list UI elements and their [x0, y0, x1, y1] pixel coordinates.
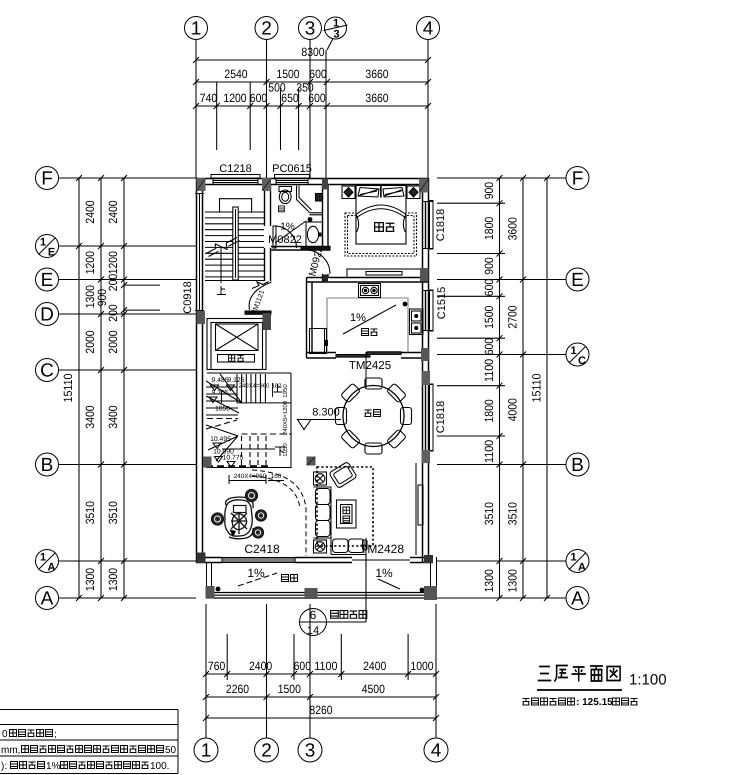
svg-text:C: C [578, 355, 586, 367]
svg-text:9.305: 9.305 [211, 390, 228, 397]
svg-text:1300: 1300 [506, 569, 520, 592]
svg-text:1500: 1500 [276, 67, 299, 81]
svg-text:2000: 2000 [106, 330, 120, 353]
svg-text:mm,: mm, [1, 745, 20, 756]
svg-text:50: 50 [165, 745, 177, 756]
svg-text:3400: 3400 [83, 405, 97, 428]
svg-text:1: 1 [570, 345, 576, 357]
svg-text:C1218: C1218 [219, 163, 251, 175]
svg-text:900: 900 [482, 257, 496, 275]
svg-text:1200: 1200 [223, 91, 246, 105]
svg-text:1500: 1500 [278, 682, 301, 696]
svg-text:1100: 1100 [482, 440, 496, 463]
svg-text:8300: 8300 [301, 45, 324, 59]
svg-text:1: 1 [201, 741, 212, 762]
svg-text:3510: 3510 [482, 502, 496, 525]
svg-text:2400: 2400 [249, 659, 272, 673]
svg-text:15110: 15110 [530, 373, 544, 402]
svg-text:: 125.15: : 125.15 [576, 697, 613, 708]
svg-text:E: E [48, 247, 55, 259]
svg-text:1950: 1950 [282, 384, 289, 398]
svg-text:;: ; [54, 729, 57, 740]
svg-text:1500: 1500 [482, 305, 496, 328]
svg-text:600: 600 [309, 67, 327, 81]
svg-text:10.495: 10.495 [210, 436, 231, 443]
svg-text:3510: 3510 [106, 501, 120, 524]
svg-text:F: F [572, 169, 584, 190]
svg-text:3660: 3660 [365, 67, 388, 81]
svg-text:1%: 1% [46, 761, 61, 772]
svg-text:1:100: 1:100 [629, 672, 667, 689]
svg-text:1: 1 [40, 552, 46, 564]
svg-text:200: 200 [106, 274, 120, 292]
svg-text:1100: 1100 [482, 359, 496, 382]
svg-text:C2418: C2418 [244, 542, 280, 556]
svg-text:1050: 1050 [282, 443, 289, 457]
svg-text:2400: 2400 [363, 659, 386, 673]
svg-text:D: D [40, 305, 54, 326]
svg-text:C1818: C1818 [435, 209, 447, 241]
svg-text:B: B [571, 455, 584, 476]
svg-text:C: C [40, 361, 54, 382]
svg-text:240X4=960: 240X4=960 [239, 383, 271, 390]
svg-text:240X5=1200: 240X5=1200 [282, 400, 289, 435]
svg-text:10.775: 10.775 [223, 455, 244, 462]
svg-text:600: 600 [482, 338, 496, 356]
svg-text:3510: 3510 [83, 501, 97, 524]
svg-text:4500: 4500 [362, 682, 385, 696]
svg-text:1050: 1050 [215, 406, 230, 413]
svg-text:3660: 3660 [365, 91, 388, 105]
svg-text:):: ): [1, 761, 7, 772]
svg-text:600: 600 [308, 91, 326, 105]
svg-text:A: A [48, 562, 56, 574]
svg-text:1300: 1300 [106, 568, 120, 591]
svg-text:B: B [41, 455, 54, 476]
svg-text:15110: 15110 [61, 373, 75, 402]
svg-text:TM2428: TM2428 [360, 542, 404, 556]
svg-text:E: E [571, 270, 584, 291]
svg-text:C1515: C1515 [436, 287, 448, 319]
svg-text:9.485: 9.485 [211, 377, 228, 384]
svg-text:E: E [41, 270, 54, 291]
svg-text:182: 182 [271, 383, 282, 390]
svg-text:200: 200 [106, 304, 120, 322]
svg-text:1300: 1300 [482, 569, 496, 592]
svg-text:760: 760 [208, 659, 226, 673]
svg-text:C1818: C1818 [435, 401, 447, 433]
svg-text:1%: 1% [247, 566, 265, 580]
svg-text:3: 3 [333, 29, 339, 41]
svg-text:PC0615: PC0615 [272, 163, 312, 175]
svg-text:100.: 100. [150, 761, 169, 772]
svg-text:740: 740 [200, 91, 218, 105]
svg-text:4: 4 [431, 741, 442, 762]
svg-text:2400: 2400 [83, 200, 97, 223]
svg-text:1000: 1000 [410, 659, 433, 673]
svg-text:M0822: M0822 [268, 234, 302, 246]
svg-text:600: 600 [294, 659, 312, 673]
svg-text:3600: 3600 [506, 217, 520, 240]
svg-text:3: 3 [305, 741, 316, 762]
svg-text:2260: 2260 [226, 682, 249, 696]
svg-text:1300: 1300 [83, 568, 97, 591]
svg-text:1200: 1200 [83, 251, 97, 274]
svg-text:3510: 3510 [506, 502, 520, 525]
svg-text:C0918: C0918 [182, 281, 194, 313]
svg-text:A: A [578, 562, 586, 574]
svg-text:1800: 1800 [482, 399, 496, 422]
svg-text:1: 1 [191, 19, 202, 40]
svg-text:600: 600 [482, 279, 496, 297]
svg-text:1: 1 [570, 552, 576, 564]
svg-text:A: A [571, 589, 584, 610]
svg-text:14: 14 [307, 625, 319, 637]
svg-text:1100: 1100 [314, 659, 337, 673]
svg-text:1: 1 [40, 237, 46, 249]
svg-text:2400: 2400 [106, 200, 120, 223]
svg-text:4000: 4000 [506, 398, 520, 421]
svg-text:4: 4 [423, 19, 434, 40]
svg-text:6: 6 [310, 608, 317, 622]
svg-text:F: F [41, 169, 53, 190]
svg-text:8.300: 8.300 [312, 407, 340, 419]
svg-text:1800: 1800 [482, 217, 496, 240]
svg-text:2: 2 [261, 741, 272, 762]
svg-text:1%: 1% [350, 312, 366, 324]
svg-text:2000: 2000 [83, 330, 97, 353]
svg-text:1200: 1200 [106, 251, 120, 274]
svg-text:900: 900 [482, 182, 496, 200]
svg-text:240X4=960: 240X4=960 [234, 473, 267, 480]
svg-text:3: 3 [305, 19, 316, 40]
svg-text:TM2425: TM2425 [349, 360, 391, 372]
svg-text:8260: 8260 [309, 703, 332, 717]
svg-text:600: 600 [250, 91, 268, 105]
svg-text:2: 2 [261, 19, 272, 40]
svg-text:2540: 2540 [224, 67, 247, 81]
svg-text:3400: 3400 [106, 405, 120, 428]
svg-text:1%: 1% [375, 566, 393, 580]
svg-text:0: 0 [2, 729, 8, 740]
svg-text:A: A [41, 589, 54, 610]
svg-text:650: 650 [281, 91, 299, 105]
svg-text:2700: 2700 [506, 305, 520, 328]
